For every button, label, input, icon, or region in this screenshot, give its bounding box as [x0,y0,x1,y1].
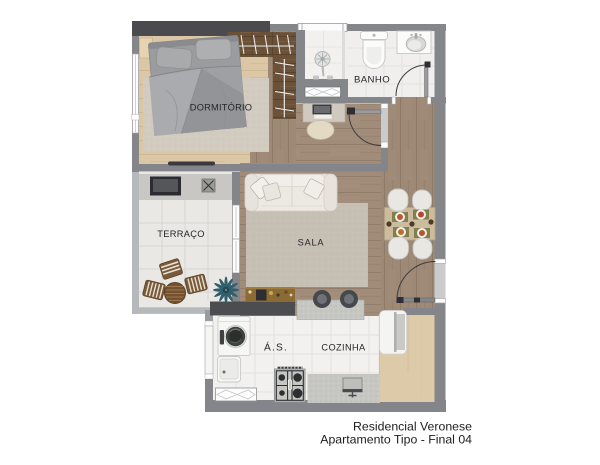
svg-text:Residencial Veronese: Residencial Veronese [353,420,472,434]
svg-text:Á.S.: Á.S. [264,341,288,354]
svg-text:COZINHA: COZINHA [321,343,366,353]
svg-text:TERRAÇO: TERRAÇO [157,229,205,239]
svg-text:DORMITÓRIO: DORMITÓRIO [190,103,252,113]
svg-text:BANHO: BANHO [354,75,390,86]
svg-text:SALA: SALA [298,238,325,248]
svg-text:Apartamento Tipo - Final 04: Apartamento Tipo - Final 04 [320,433,472,447]
